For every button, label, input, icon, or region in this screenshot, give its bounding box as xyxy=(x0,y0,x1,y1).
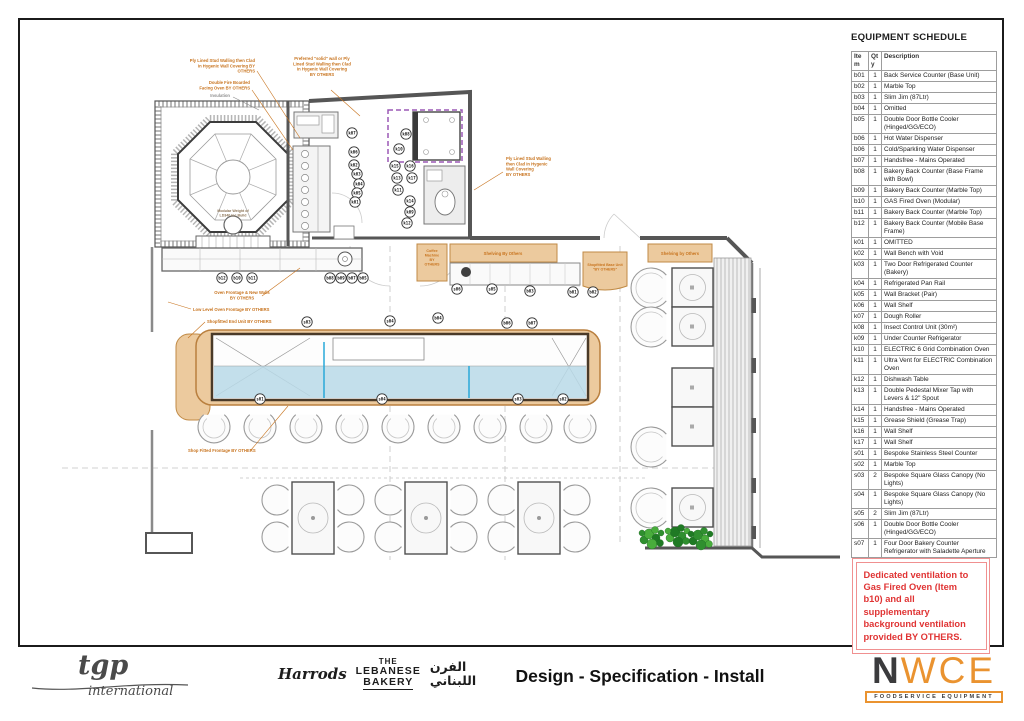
item-tag-b11: b11 xyxy=(247,273,257,283)
plan-annotation: Oven Frontage & New WallsBY OTHERS xyxy=(214,290,270,300)
svg-text:k14: k14 xyxy=(406,199,414,204)
schedule-row: b081Bakery Back Counter (Base Frame with… xyxy=(852,167,997,186)
schedule-row: s011Bespoke Stainless Steel Counter xyxy=(852,449,997,460)
item-tag-b04: b04 xyxy=(433,313,443,323)
equipment-schedule-title: EQUIPMENT SCHEDULE xyxy=(851,32,997,43)
svg-text:s04: s04 xyxy=(378,397,386,402)
item-tag-b01: b01 xyxy=(568,287,578,297)
svg-text:k05: k05 xyxy=(353,191,361,196)
svg-text:b12: b12 xyxy=(218,276,226,281)
schedule-row: k081Insect Control Unit (30m²) xyxy=(852,323,997,334)
schedule-row: k111Ultra Vent for ELECTRIC Combination … xyxy=(852,356,997,375)
back-counter xyxy=(162,248,362,271)
schedule-row: s052Slim Jim (87Ltr) xyxy=(852,509,997,520)
nwce-letter-n: N xyxy=(872,652,899,689)
svg-text:k08: k08 xyxy=(402,132,410,137)
svg-text:b10: b10 xyxy=(233,276,241,281)
item-tag-s04: s04 xyxy=(377,394,387,404)
tgp-subtitle: international xyxy=(88,684,173,699)
svg-text:b07: b07 xyxy=(528,321,536,326)
schedule-header-row: ItemQtyDescription xyxy=(852,52,997,71)
ventilation-note: Dedicated ventilation to Gas Fired Oven … xyxy=(852,558,990,654)
plan-annotation: Double Fire BoardedFacing Oven BY OTHERS xyxy=(199,80,250,90)
item-tag-b02: b02 xyxy=(588,287,598,297)
furniture xyxy=(198,268,713,554)
schedule-row: k021Wall Bench with Void xyxy=(852,249,997,260)
item-tag-b05: b05 xyxy=(358,273,368,283)
schedule-row: k031Two Door Refrigerated Counter (Baker… xyxy=(852,260,997,279)
nwce-logo: N WCE FOODSERVICE EQUIPMENT xyxy=(868,652,1000,703)
schedule-row: b091Bakery Back Counter (Marble Top) xyxy=(852,186,997,197)
schedule-row: b061Cold/Sparkling Water Dispenser xyxy=(852,145,997,156)
equipment-schedule-table: ItemQtyDescription b011Back Service Coun… xyxy=(851,51,997,558)
item-tag-b12: b12 xyxy=(217,273,227,283)
schedule-row: s061Double Door Bottle Cooler (Hinged/GG… xyxy=(852,520,997,539)
item-tag-k14: k14 xyxy=(405,196,415,206)
client-logos: Harrods THE LEBANESE BAKERY الفرن اللبنا… xyxy=(278,658,476,690)
schedule-col-header: Qty xyxy=(869,52,882,71)
sheet-title: Design - Specification - Install xyxy=(470,666,810,687)
item-tag-b06: b06 xyxy=(502,318,512,328)
item-tag-s01: s01 xyxy=(255,394,265,404)
schedule-row: k091Under Counter Refrigerator xyxy=(852,334,997,345)
item-tag-k10: k10 xyxy=(394,144,404,154)
plan-annotation: Shopfitted End Unit BY OTHERS xyxy=(207,319,272,324)
svg-text:k01: k01 xyxy=(351,200,359,205)
title-block: tgp international Harrods THE LEBANESE B… xyxy=(0,648,1024,721)
schedule-row: k171Wall Shelf xyxy=(852,438,997,449)
schedule-row: s041Bespoke Square Glass Canopy (No Ligh… xyxy=(852,490,997,509)
arabic-line-1: الفرن xyxy=(430,660,466,674)
item-tag-s02: s02 xyxy=(558,394,568,404)
schedule-row: b021Marble Top xyxy=(852,82,997,93)
equipment-schedule-panel: EQUIPMENT SCHEDULE ItemQtyDescription b0… xyxy=(851,32,997,558)
item-tag-k11: k11 xyxy=(393,185,403,195)
nwce-wordmark: N WCE xyxy=(872,652,996,689)
item-tag-k08: k08 xyxy=(401,129,411,139)
svg-text:k17: k17 xyxy=(408,176,416,181)
item-tag-k01: k01 xyxy=(350,197,360,207)
dome-oven xyxy=(174,118,292,248)
plan-annotation: Shelving By Others xyxy=(484,251,523,256)
svg-text:k13: k13 xyxy=(393,176,401,181)
main-counter xyxy=(196,330,600,405)
tgp-wordmark: tgp xyxy=(78,650,128,681)
item-tag-b07: b07 xyxy=(527,318,537,328)
svg-text:k15: k15 xyxy=(391,164,399,169)
item-tag-k07: k07 xyxy=(347,128,357,138)
schedule-row: k141Handsfree - Mains Operated xyxy=(852,405,997,416)
schedule-row: b121Bakery Back Counter (Mobile Base Fra… xyxy=(852,219,997,238)
svg-text:k04: k04 xyxy=(355,182,363,187)
item-tag-s04: s04 xyxy=(385,316,395,326)
svg-text:s02: s02 xyxy=(559,397,567,402)
svg-text:k09: k09 xyxy=(406,210,414,215)
item-tag-k15: k15 xyxy=(390,161,400,171)
counter-display-strip xyxy=(214,366,586,398)
svg-text:k12: k12 xyxy=(403,221,411,226)
schedule-row: k061Wall Shelf xyxy=(852,301,997,312)
svg-text:b08: b08 xyxy=(326,276,334,281)
item-tag-b07: b07 xyxy=(347,273,357,283)
tgp-logo: tgp international xyxy=(30,654,190,714)
item-tag-s06: s06 xyxy=(452,284,462,294)
svg-text:b06: b06 xyxy=(503,321,511,326)
svg-text:b01: b01 xyxy=(569,290,577,295)
schedule-row: k161Wall Shelf xyxy=(852,427,997,438)
schedule-row: s021Marble Top xyxy=(852,460,997,471)
schedule-col-header: Item xyxy=(852,52,869,71)
item-tag-k12: k12 xyxy=(402,218,412,228)
drawing-page: b12b10b11b08b09b07b05k07k06k02k03k04k05k… xyxy=(0,0,1024,721)
svg-text:k02: k02 xyxy=(350,163,358,168)
svg-text:b09: b09 xyxy=(337,276,345,281)
item-tag-s05: s05 xyxy=(487,284,497,294)
schedule-row: k121Dishwash Table xyxy=(852,375,997,386)
schedule-row: b101GAS Fired Oven (Modular) xyxy=(852,197,997,208)
svg-text:b11: b11 xyxy=(248,276,256,281)
schedule-row: k041Refrigerated Pan Rail xyxy=(852,279,997,290)
banquette-seating xyxy=(714,258,751,546)
svg-text:b04: b04 xyxy=(434,316,442,321)
item-tag-s03: s03 xyxy=(302,317,312,327)
schedule-row: k151Grease Shield (Grease Trap) xyxy=(852,416,997,427)
counter-void xyxy=(333,338,424,360)
svg-text:s03: s03 xyxy=(303,320,311,325)
item-tag-b09: b09 xyxy=(336,273,346,283)
svg-text:b03: b03 xyxy=(526,289,534,294)
svg-text:k11: k11 xyxy=(394,188,402,193)
front-service-counter xyxy=(450,263,580,285)
schedule-row: k011OMITTED xyxy=(852,238,997,249)
item-tag-b08: b08 xyxy=(325,273,335,283)
svg-text:k03: k03 xyxy=(353,172,361,177)
item-tag-s03: s03 xyxy=(513,394,523,404)
svg-text:b07: b07 xyxy=(348,276,356,281)
schedule-row: b061Hot Water Dispenser xyxy=(852,134,997,145)
plan-annotation: Ply Lined Stud Wallingthen Clad in Hygen… xyxy=(506,156,551,177)
plan-annotation: Ply Lined Stud Walling then Cladin Hygen… xyxy=(190,58,256,74)
schedule-row: b031Slim Jim (87Ltr) xyxy=(852,93,997,104)
svg-text:s04: s04 xyxy=(386,319,394,324)
svg-text:b02: b02 xyxy=(589,290,597,295)
plan-annotation: Modular Weight ofLD340 inc Build xyxy=(217,209,249,218)
harrods-logo: Harrods xyxy=(278,665,347,683)
schedule-row: k071Dough Roller xyxy=(852,312,997,323)
schedule-row: k101ELECTRIC 6 Grid Combination Oven xyxy=(852,345,997,356)
plan-annotation: Shelving by Others xyxy=(661,251,700,256)
schedule-col-header: Description xyxy=(882,52,997,71)
item-tag-b03: b03 xyxy=(525,286,535,296)
svg-text:b05: b05 xyxy=(359,276,367,281)
schedule-row: b111Bakery Back Counter (Marble Top) xyxy=(852,208,997,219)
schedule-row: b041Omitted xyxy=(852,104,997,115)
nwce-letters-wce: WCE xyxy=(901,652,996,689)
item-tag-k13: k13 xyxy=(392,173,402,183)
plan-annotation: Preferred "solid" wall or PlyLined Stud … xyxy=(293,56,351,77)
schedule-row: b071Handsfree - Mains Operated xyxy=(852,156,997,167)
ventilation-note-text: Dedicated ventilation to Gas Fired Oven … xyxy=(856,562,987,651)
item-tag-k06: k06 xyxy=(349,147,359,157)
schedule-row: s032Bespoke Square Glass Canopy (No Ligh… xyxy=(852,471,997,490)
schedule-row: k131Double Pedestal Mixer Tap with Lever… xyxy=(852,386,997,405)
plan-annotation: Insulation xyxy=(210,93,230,98)
svg-text:k06: k06 xyxy=(350,150,358,155)
schedule-row: b011Back Service Counter (Base Unit) xyxy=(852,71,997,82)
svg-text:s06: s06 xyxy=(453,287,461,292)
nwce-tagline: FOODSERVICE EQUIPMENT xyxy=(865,691,1003,703)
svg-text:s05: s05 xyxy=(488,287,496,292)
schedule-row: k051Wall Bracket (Pair) xyxy=(852,290,997,301)
plan-annotation: Shop Fitted Frontage BY OTHERS xyxy=(188,448,256,453)
schedule-row: s071Four Door Bakery Counter Refrigerato… xyxy=(852,539,997,558)
svg-text:s03: s03 xyxy=(514,397,522,402)
svg-text:k16: k16 xyxy=(406,164,414,169)
svg-text:s01: s01 xyxy=(256,397,264,402)
svg-text:k10: k10 xyxy=(395,147,403,152)
item-tag-k03: k03 xyxy=(352,169,362,179)
lebanese-bakery-logo: THE LEBANESE BAKERY xyxy=(356,658,421,690)
item-tag-k16: k16 xyxy=(405,161,415,171)
item-tag-b10: b10 xyxy=(232,273,242,283)
item-tag-k09: k09 xyxy=(405,207,415,217)
bakery-line-3: BAKERY xyxy=(363,677,413,690)
schedule-row: b051Double Door Bottle Cooler (Hinged/GG… xyxy=(852,115,997,134)
svg-text:k07: k07 xyxy=(348,131,356,136)
plan-annotation: Low Level Oven Frontage BY OTHERS xyxy=(193,307,270,312)
item-tag-k17: k17 xyxy=(407,173,417,183)
kitchen-equipment xyxy=(293,110,465,239)
